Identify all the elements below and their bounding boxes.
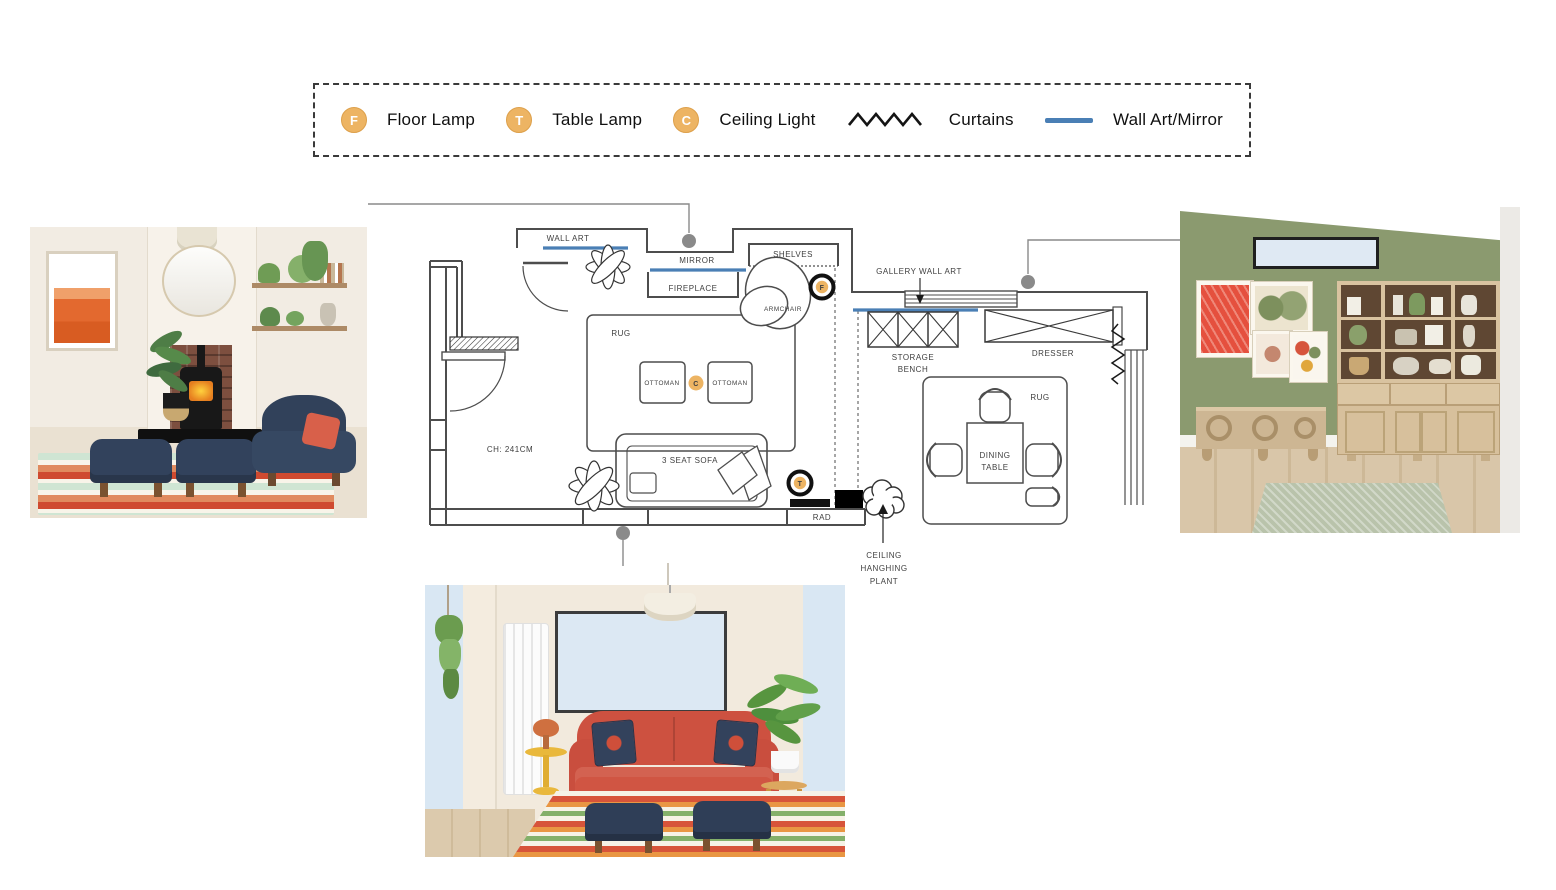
- plant-symbol-bottom: [569, 461, 619, 511]
- storage-bench-label: STORAGE: [892, 353, 934, 362]
- wood-hutch: [1337, 281, 1500, 461]
- long-mirror: [1253, 237, 1379, 269]
- ceiling-height-label: CH: 241CM: [487, 445, 533, 454]
- round-mirror: [162, 245, 236, 317]
- ottoman: [585, 803, 663, 855]
- gallery-wall-art-label: GALLERY WALL ART: [876, 267, 962, 276]
- fireplace-label: FIREPLACE: [669, 284, 718, 293]
- legend-label: Table Lamp: [552, 110, 642, 130]
- dining-table-label: DINING: [980, 451, 1011, 460]
- legend-item-ceiling-light: C Ceiling Light: [673, 107, 815, 133]
- render-fireplace-lounge: [30, 227, 367, 518]
- ottoman: [90, 439, 172, 499]
- yellow-side-table: [525, 747, 567, 797]
- media-bar: [790, 499, 830, 507]
- dining-rug-label: RUG: [1030, 393, 1049, 402]
- table-lamp-letter: T: [798, 481, 803, 488]
- legend-item-table-lamp: T Table Lamp: [506, 107, 642, 133]
- wall-art-label: WALL ART: [547, 234, 590, 243]
- callout-right-render: [1021, 240, 1184, 289]
- render-coral-sofa-wall: [425, 585, 845, 857]
- radiator-label: RAD: [813, 513, 831, 522]
- hanging-plant: [431, 585, 465, 703]
- plant-symbol-top: [586, 245, 630, 289]
- ceiling-light-icon: C: [673, 107, 699, 133]
- callout-bottom-render: [616, 526, 668, 585]
- sage-rug: [1252, 483, 1452, 533]
- carved-bench: [1196, 403, 1326, 461]
- dresser-label: DRESSER: [1032, 349, 1074, 358]
- table-lamp: [533, 719, 559, 751]
- shelves-label: SHELVES: [773, 250, 813, 259]
- shelf-plant: [258, 263, 280, 283]
- art-frame-colorful: [1290, 332, 1327, 382]
- coat-hooks-hatch: [442, 337, 518, 360]
- curtains-zigzag-icon: [847, 109, 929, 131]
- legend-box: F Floor Lamp T Table Lamp C Ceiling Ligh…: [313, 83, 1251, 157]
- legend-label: Curtains: [949, 110, 1014, 130]
- striped-rug: [513, 791, 845, 857]
- storage-bench-symbol: [868, 312, 958, 347]
- gallery-wall-art-symbol: [905, 278, 1017, 307]
- legend-label: Wall Art/Mirror: [1113, 110, 1223, 130]
- render-sage-dresser-wall: [1180, 207, 1520, 533]
- wall-shelf: [252, 283, 347, 288]
- pendant-drum-shade: [644, 593, 696, 621]
- hanging-trailing-plant: [302, 241, 328, 281]
- shelf-plant: [286, 311, 304, 326]
- stove-fire-window: [189, 381, 213, 401]
- ottoman: [176, 439, 256, 499]
- floor-plant-leaves: [146, 327, 192, 397]
- table-lamp-icon: T: [506, 107, 532, 133]
- legend-item-floor-lamp: F Floor Lamp: [341, 107, 475, 133]
- storage-bench-label: BENCH: [898, 365, 929, 374]
- navy-armchair: [252, 395, 356, 487]
- legend-label: Floor Lamp: [387, 110, 475, 130]
- ceiling-plant-label: HANGHING: [860, 564, 907, 573]
- floor-plan: WALL ART MIRROR FIREPLACE SHELVES GALLER…: [360, 195, 1190, 595]
- legend-item-wall-art-mirror: Wall Art/Mirror: [1045, 110, 1223, 130]
- shelf-vase: [320, 303, 336, 326]
- sofa-label: 3 SEAT SOFA: [662, 456, 718, 465]
- legend-item-curtains: Curtains: [847, 109, 1014, 131]
- art-frame-sketch: [1253, 331, 1292, 377]
- legend-label: Ceiling Light: [719, 110, 815, 130]
- dresser-symbol: [985, 307, 1122, 345]
- sofa-symbol: [616, 434, 771, 507]
- plant-basket-pot: [163, 393, 189, 421]
- palm-plant: [743, 669, 823, 779]
- ceiling-plant-label: PLANT: [870, 577, 898, 586]
- art-frame-coral: [1197, 281, 1253, 357]
- ottoman-label: OTTOMAN: [644, 380, 679, 387]
- floor-lamp-letter: F: [820, 285, 825, 292]
- orange-art-frame: [46, 251, 118, 351]
- ottoman-label: OTTOMAN: [712, 380, 747, 387]
- wall-art-line-icon: [1045, 118, 1093, 123]
- dining-table-label: TABLE: [981, 463, 1008, 472]
- cream-pillar: [463, 585, 497, 817]
- hanging-plant-symbol: [863, 480, 904, 543]
- ceiling-light-letter: C: [693, 381, 699, 388]
- shelf-plant: [260, 307, 280, 326]
- right-wall-sliver: [1500, 207, 1520, 533]
- art-frame-green: [1251, 282, 1312, 334]
- living-rug-label: RUG: [611, 329, 630, 338]
- armchair-symbol: [735, 249, 819, 337]
- mirror-label: MIRROR: [679, 256, 714, 265]
- moodboard-page: { "legend": { "items": [ { "symbol": "F"…: [0, 0, 1556, 890]
- ottoman: [693, 801, 771, 853]
- ceiling-plant-label: CEILING: [866, 551, 902, 560]
- floor-lamp-icon: F: [341, 107, 367, 133]
- wall-mirror-screen: [555, 611, 727, 713]
- black-unit: [835, 490, 863, 508]
- armchair-label: ARMCHAIR: [764, 306, 802, 313]
- wall-shelf: [252, 326, 347, 331]
